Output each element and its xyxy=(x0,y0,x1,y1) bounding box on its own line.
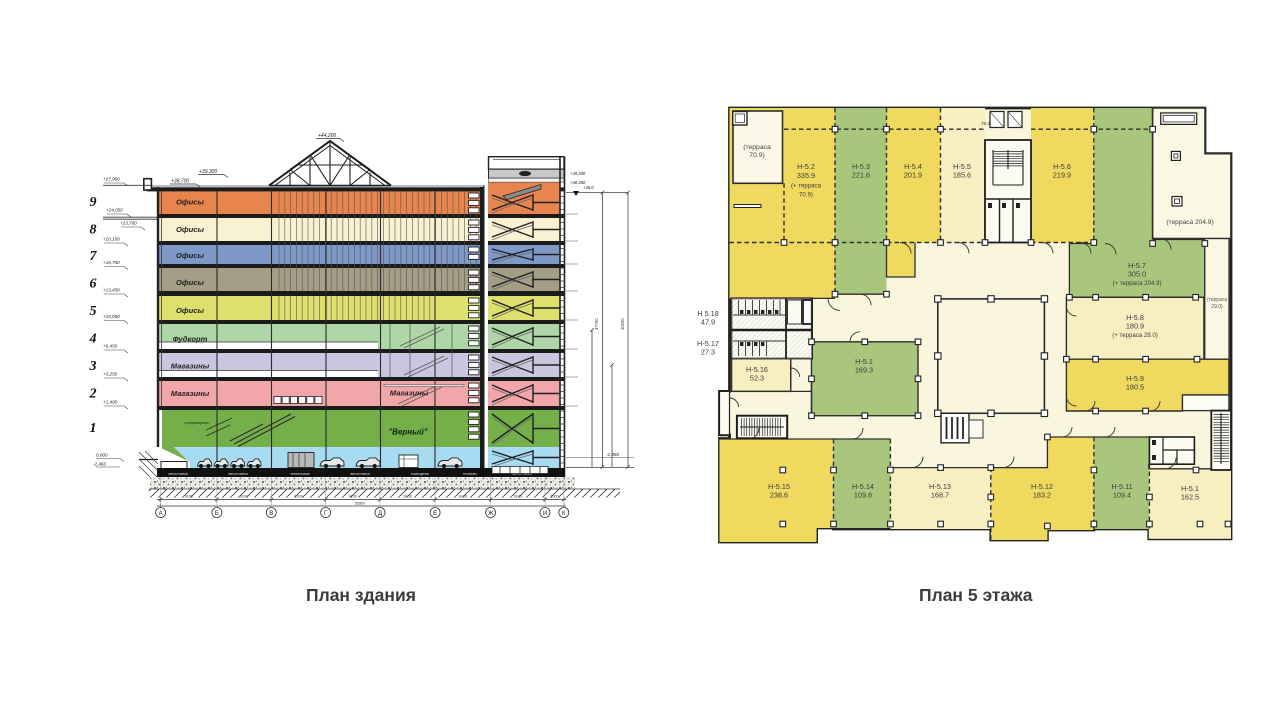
svg-text:Офисы: Офисы xyxy=(176,278,204,287)
svg-text:29.0): 29.0) xyxy=(1211,304,1223,310)
svg-text:52.3: 52.3 xyxy=(750,374,764,383)
svg-text:Магазины: Магазины xyxy=(171,389,210,398)
svg-text:+13,450: +13,450 xyxy=(103,288,120,293)
svg-text:2: 2 xyxy=(89,387,97,402)
svg-text:технические: технические xyxy=(290,472,310,476)
svg-text:219.9: 219.9 xyxy=(1053,171,1071,180)
svg-text:+3,250: +3,250 xyxy=(103,372,118,377)
svg-text:4: 4 xyxy=(89,332,97,347)
svg-text:6: 6 xyxy=(90,277,97,292)
svg-text:+1,400: +1,400 xyxy=(103,400,118,405)
svg-text:169.3: 169.3 xyxy=(855,366,873,375)
svg-text:К: К xyxy=(562,511,566,517)
svg-text:+16,750: +16,750 xyxy=(103,260,120,265)
svg-text:7: 7 xyxy=(90,249,98,264)
svg-text:Б: Б xyxy=(215,511,219,517)
svg-text:109.4: 109.4 xyxy=(1113,491,1131,500)
svg-text:162.5: 162.5 xyxy=(1181,493,1199,502)
svg-text:+23,700: +23,700 xyxy=(120,221,137,226)
svg-text:9100: 9100 xyxy=(349,495,357,499)
svg-text:3: 3 xyxy=(89,359,97,374)
svg-text:70.9): 70.9) xyxy=(799,192,813,199)
svg-text:супермаркет: супермаркет xyxy=(184,420,210,425)
svg-text:8: 8 xyxy=(90,223,97,238)
svg-text:185.6: 185.6 xyxy=(953,171,971,180)
svg-text:9100: 9100 xyxy=(403,495,411,499)
svg-text:+20,150: +20,150 xyxy=(103,237,120,242)
svg-text:"Верный": "Верный" xyxy=(388,428,427,437)
svg-text:И: И xyxy=(543,511,547,517)
svg-text:Е: Е xyxy=(433,511,437,517)
svg-text:В: В xyxy=(269,511,273,517)
svg-text:-2,450: -2,450 xyxy=(606,452,619,457)
svg-text:55800: 55800 xyxy=(355,502,366,506)
svg-text:(+ терраса 204.9): (+ терраса 204.9) xyxy=(1113,280,1162,287)
svg-text:-2,460: -2,460 xyxy=(93,462,106,467)
svg-text:3000: 3000 xyxy=(550,495,558,499)
svg-text:9: 9 xyxy=(90,195,97,210)
svg-text:техничес: техничес xyxy=(463,472,477,476)
svg-text:Ж: Ж xyxy=(488,511,494,517)
svg-text:47.9: 47.9 xyxy=(701,318,715,327)
svg-text:40200: 40200 xyxy=(620,318,625,330)
svg-text:180.5: 180.5 xyxy=(1126,383,1144,392)
svg-text:109.8: 109.8 xyxy=(854,491,872,500)
svg-text:+24,050: +24,050 xyxy=(106,208,123,213)
svg-text:9100: 9100 xyxy=(294,495,302,499)
svg-text:Офисы: Офисы xyxy=(176,225,204,234)
svg-text:27.3: 27.3 xyxy=(701,348,715,357)
svg-text:Магазины: Магазины xyxy=(390,389,429,398)
svg-text:(терраса: (терраса xyxy=(1207,297,1228,303)
svg-text:201.9: 201.9 xyxy=(904,171,922,180)
svg-text:+6,450: +6,450 xyxy=(103,344,118,349)
svg-text:183.2: 183.2 xyxy=(1033,491,1051,500)
svg-text:А: А xyxy=(159,511,163,517)
svg-text:автостоянка: автостоянка xyxy=(228,472,247,476)
svg-text:238.6: 238.6 xyxy=(770,491,788,500)
svg-text:Офисы: Офисы xyxy=(176,306,204,315)
svg-text:автостоянка: автостоянка xyxy=(168,472,187,476)
svg-text:221.6: 221.6 xyxy=(852,171,870,180)
svg-text:Н-5.2: Н-5.2 xyxy=(797,162,815,171)
svg-text:помещения: помещения xyxy=(411,472,429,476)
svg-text:(терраса 204.9): (терраса 204.9) xyxy=(1166,219,1213,226)
svg-text:9100: 9100 xyxy=(514,495,522,499)
svg-text:168.7: 168.7 xyxy=(931,491,949,500)
svg-text:+38,700: +38,700 xyxy=(171,179,189,185)
svg-text:+44,200: +44,200 xyxy=(318,133,336,139)
svg-text:+39,300: +39,300 xyxy=(570,171,586,176)
svg-text:+27,950: +27,950 xyxy=(103,177,120,182)
svg-text:(+ терраса 29.0): (+ терраса 29.0) xyxy=(1112,332,1158,339)
svg-text:Магазины: Магазины xyxy=(171,362,210,371)
svg-text:+36,0: +36,0 xyxy=(583,185,594,190)
svg-text:9100: 9100 xyxy=(459,495,467,499)
svg-text:(терраса: (терраса xyxy=(743,144,771,151)
svg-text:78,3: 78,3 xyxy=(981,121,990,126)
svg-text:Офисы: Офисы xyxy=(176,251,204,260)
svg-text:Офисы: Офисы xyxy=(176,198,204,207)
svg-text:335.9: 335.9 xyxy=(797,171,815,180)
svg-text:0,000: 0,000 xyxy=(96,453,108,458)
svg-text:+39,300: +39,300 xyxy=(199,169,217,175)
svg-text:9100: 9100 xyxy=(240,495,248,499)
svg-text:(+ терраса: (+ терраса xyxy=(791,182,822,189)
svg-text:305.0: 305.0 xyxy=(1128,270,1146,279)
svg-text:1: 1 xyxy=(90,421,97,436)
svg-text:70.9): 70.9) xyxy=(749,152,765,159)
svg-text:автостоянка: автостоянка xyxy=(350,472,369,476)
svg-text:180.9: 180.9 xyxy=(1126,322,1144,331)
svg-text:+10,050: +10,050 xyxy=(103,314,120,319)
svg-text:9100: 9100 xyxy=(185,495,193,499)
svg-text:37750: 37750 xyxy=(594,318,599,330)
svg-text:Фудкорт: Фудкорт xyxy=(173,335,208,344)
svg-text:Д: Д xyxy=(378,511,382,517)
svg-text:5: 5 xyxy=(90,304,97,319)
